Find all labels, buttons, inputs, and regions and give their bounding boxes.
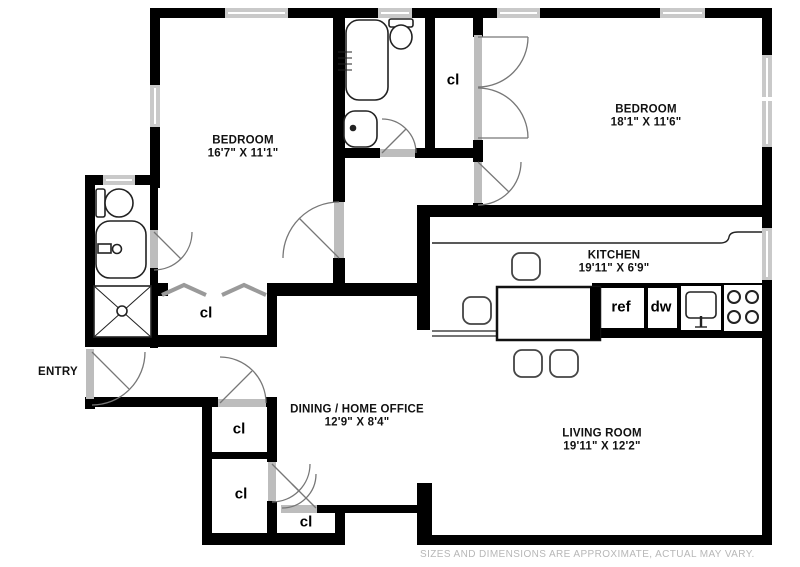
bedroom2-label: BEDROOM 18'1" X 11'6" — [611, 104, 682, 129]
toilet-left — [96, 189, 133, 217]
bathroom2-door — [154, 232, 192, 270]
stove — [724, 285, 762, 331]
counter-edge-line — [432, 232, 762, 243]
kitchen-name: KITCHEN — [579, 250, 650, 263]
bathtub — [338, 20, 388, 100]
living-room-label: LIVING ROOM 19'11" X 12'2" — [562, 428, 642, 453]
closet-label-bedroom1: cl — [200, 305, 213, 322]
dining-name: DINING / HOME OFFICE — [290, 404, 424, 417]
closet-label-3: cl — [300, 514, 313, 531]
window — [103, 8, 772, 280]
bedroom2-name: BEDROOM — [611, 104, 682, 117]
bedroom1-dims: 16'7" X 11'1" — [208, 147, 279, 160]
bedroom1-name: BEDROOM — [208, 135, 279, 148]
dining-dims: 12'9" X 8'4" — [290, 416, 424, 429]
living-room-name: LIVING ROOM — [562, 428, 642, 441]
kitchen-label: KITCHEN 19'11" X 6'9" — [579, 250, 650, 275]
closet-label-1: cl — [233, 421, 246, 438]
entry-label: ENTRY — [38, 366, 78, 378]
bathroom1-door — [382, 119, 416, 153]
closet-label-2: cl — [235, 486, 248, 503]
sink-top — [344, 111, 377, 147]
sink-vanity-left — [96, 221, 146, 278]
bedroom1-door — [283, 202, 339, 258]
dining-label: DINING / HOME OFFICE 12'9" X 8'4" — [290, 404, 424, 429]
closet-french-doors — [478, 37, 528, 138]
closet-label-hall: cl — [447, 72, 460, 89]
shower — [94, 286, 151, 337]
disclaimer-text: SIZES AND DIMENSIONS ARE APPROXIMATE, AC… — [420, 549, 755, 560]
floor-plan: BEDROOM 16'7" X 11'1" BEDROOM 18'1" X 11… — [0, 0, 800, 567]
bedroom2-dims: 18'1" X 11'6" — [611, 116, 682, 129]
living-room-dims: 19'11" X 12'2" — [562, 440, 642, 453]
kitchen-dims: 19'11" X 6'9" — [579, 262, 650, 275]
bedroom2-door — [478, 162, 521, 205]
refrigerator-label: ref — [611, 299, 630, 316]
kitchen-island — [497, 287, 600, 340]
closet1-door — [220, 357, 266, 403]
windows-layer — [103, 8, 772, 280]
window-mullion — [762, 97, 772, 101]
dishwasher-label: dw — [651, 299, 672, 316]
toilet-top — [389, 19, 413, 49]
bifold-closet-doors — [162, 285, 266, 295]
walls-layer — [85, 8, 772, 545]
floor-plan-drawing — [0, 0, 800, 567]
bedroom1-label: BEDROOM 16'7" X 11'1" — [208, 135, 279, 160]
kitchen-sink — [681, 286, 721, 330]
